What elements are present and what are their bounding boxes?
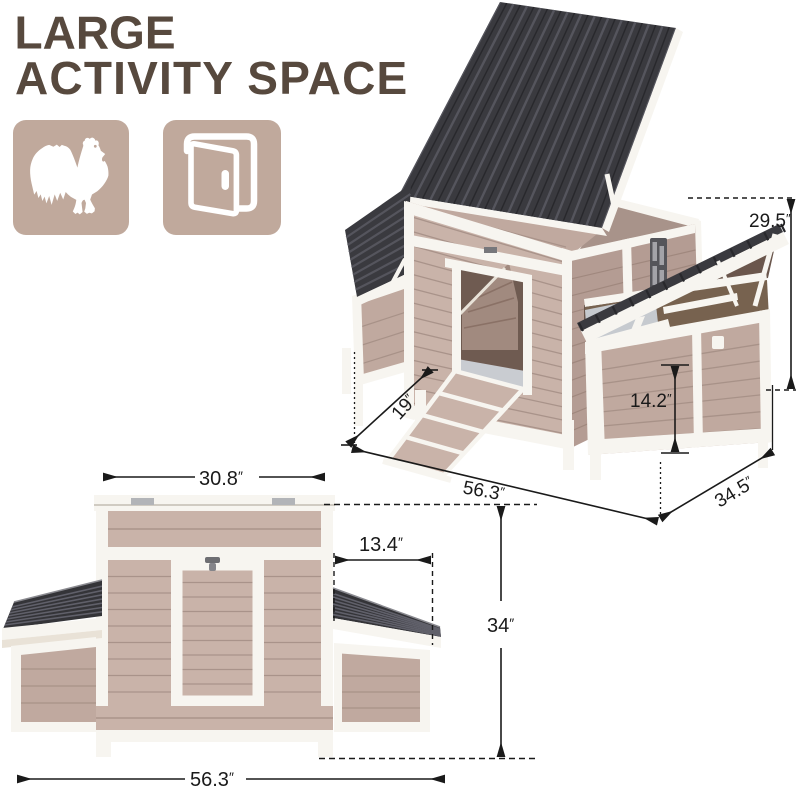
svg-text:30.8″: 30.8″ — [199, 468, 243, 490]
svg-text:13.4″: 13.4″ — [359, 534, 403, 556]
svg-text:29.5″: 29.5″ — [749, 211, 791, 232]
svg-text:14.2″: 14.2″ — [630, 391, 672, 412]
svg-text:56.3″: 56.3″ — [190, 769, 234, 791]
svg-text:ACTIVITY SPACE: ACTIVITY SPACE — [15, 52, 408, 104]
svg-text:LARGE: LARGE — [15, 7, 176, 59]
